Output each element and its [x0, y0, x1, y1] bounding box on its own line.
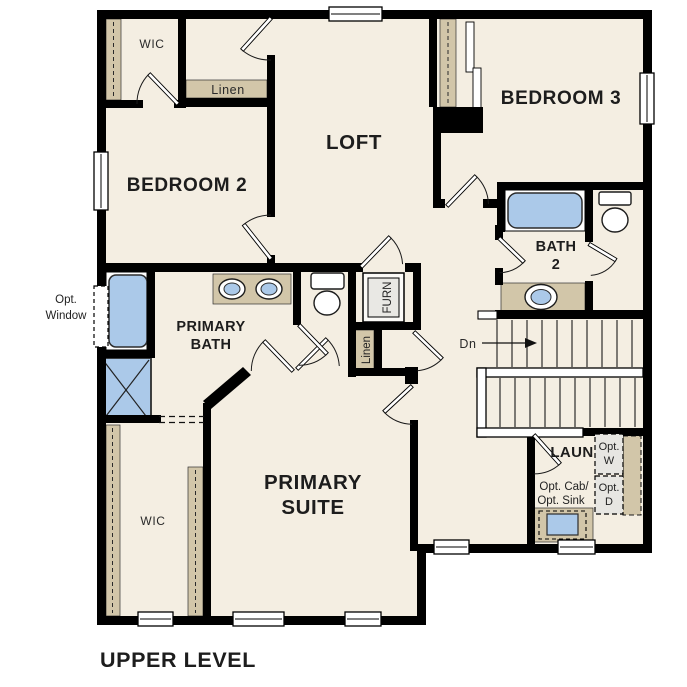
opt-washer-label-line2: W [604, 455, 615, 467]
opt-cab-label-line1: Opt. Cab/ [539, 481, 589, 493]
bedroom2-label: BEDROOM 2 [127, 175, 247, 196]
optional-washer-box [595, 434, 623, 474]
primary-bath-label-line2: BATH [191, 337, 232, 353]
bath2-bathtub-icon [508, 193, 582, 228]
window [329, 7, 382, 21]
window [640, 73, 654, 124]
opt-window-label-line1: Opt. [55, 294, 77, 306]
plan-title: UPPER LEVEL [100, 648, 256, 672]
loft-label: LOFT [326, 131, 382, 154]
bath2-sink-icon [525, 285, 557, 310]
bedroom3-label: BEDROOM 3 [501, 88, 621, 109]
floor-plan-page: WIC Linen BEDROOM 2 LOFT BEDROOM 3 BATH … [0, 0, 687, 687]
shower-icon [101, 358, 151, 422]
window [434, 540, 469, 554]
primary-suite-label-line2: SUITE [281, 496, 344, 519]
opt-washer-label-line1: Opt. [599, 441, 620, 453]
stair-rail [477, 368, 486, 437]
window [345, 612, 381, 626]
stair-newel [478, 311, 497, 319]
window [558, 540, 595, 554]
primary-sink-left-icon [219, 279, 245, 299]
stairs-down-label: Dn [459, 337, 476, 351]
wic-bottom-label: WIC [140, 514, 165, 528]
window [233, 612, 284, 626]
primary-suite-label-line1: PRIMARY [264, 471, 362, 494]
opt-window-label-line2: Window [46, 310, 88, 322]
window [138, 612, 173, 626]
linen-hall-label: Linen [361, 336, 373, 364]
furnace-label: FURN [382, 282, 394, 314]
opt-dryer-label-line1: Opt. [599, 482, 620, 494]
stair-rail [477, 368, 643, 377]
primary-bathtub-icon [109, 275, 147, 347]
primary-bath-label-line1: PRIMARY [176, 319, 245, 335]
laundry-side-counter [623, 436, 641, 515]
opt-sink-label-line2: Opt. Sink [537, 495, 585, 507]
closet-bypass-door [473, 68, 481, 110]
laundry-label: LAUN [550, 444, 593, 461]
linen-top-label: Linen [211, 83, 245, 97]
optional-window [94, 286, 108, 347]
floor-plan-canvas: WIC Linen BEDROOM 2 LOFT BEDROOM 3 BATH … [0, 0, 687, 687]
bath2-label-line2: 2 [552, 257, 560, 273]
primary-sink-right-icon [256, 279, 282, 299]
stair-rail [477, 428, 583, 437]
bath2-label-line1: BATH [536, 239, 577, 255]
wic-top-label: WIC [139, 37, 164, 51]
window [94, 152, 108, 210]
opt-dryer-label-line2: D [605, 496, 613, 508]
closet-bypass-door [466, 22, 474, 72]
